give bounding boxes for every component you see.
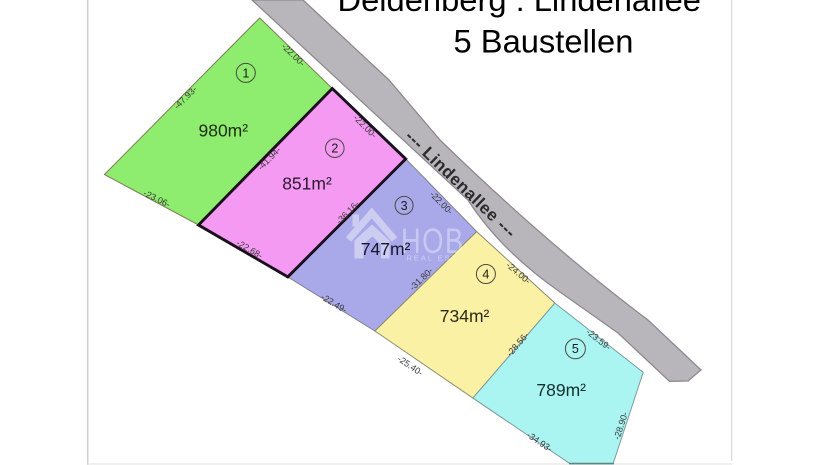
- svg-text:1: 1: [242, 66, 249, 80]
- svg-text:734m²: 734m²: [440, 306, 490, 326]
- svg-text:2: 2: [331, 142, 338, 156]
- svg-text:3: 3: [401, 199, 408, 213]
- svg-text:Deidenberg : Lindenallee: Deidenberg : Lindenallee: [338, 0, 701, 18]
- svg-text:789m²: 789m²: [536, 380, 586, 400]
- svg-text:REAL EST: REAL EST: [407, 254, 459, 263]
- svg-text:5 Baustellen: 5 Baustellen: [454, 23, 634, 60]
- svg-text:851m²: 851m²: [282, 174, 332, 194]
- svg-text:5: 5: [572, 342, 579, 356]
- svg-text:980m²: 980m²: [198, 121, 248, 141]
- svg-text:4: 4: [482, 267, 489, 281]
- svg-text:747m²: 747m²: [361, 239, 411, 259]
